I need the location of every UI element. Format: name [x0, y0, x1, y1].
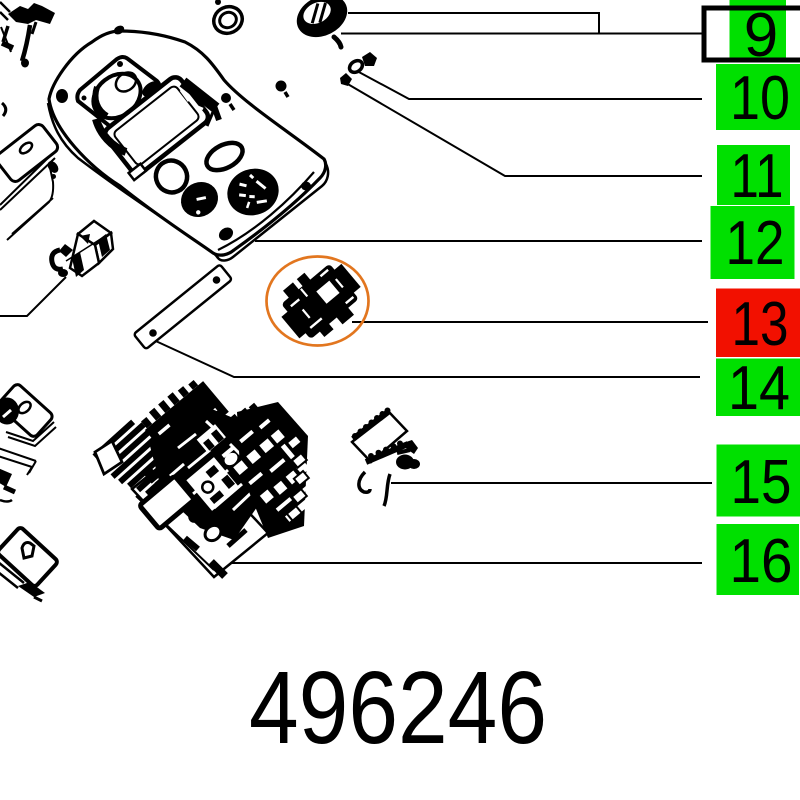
svg-text:16: 16: [730, 527, 793, 596]
svg-text:13: 13: [732, 290, 789, 359]
svg-text:496246: 496246: [249, 650, 547, 765]
svg-text:15: 15: [731, 448, 792, 517]
svg-text:9: 9: [744, 1, 778, 70]
svg-text:12: 12: [726, 209, 785, 278]
svg-text:11: 11: [731, 142, 784, 211]
svg-text:14: 14: [728, 354, 790, 423]
svg-text:10: 10: [730, 64, 790, 133]
